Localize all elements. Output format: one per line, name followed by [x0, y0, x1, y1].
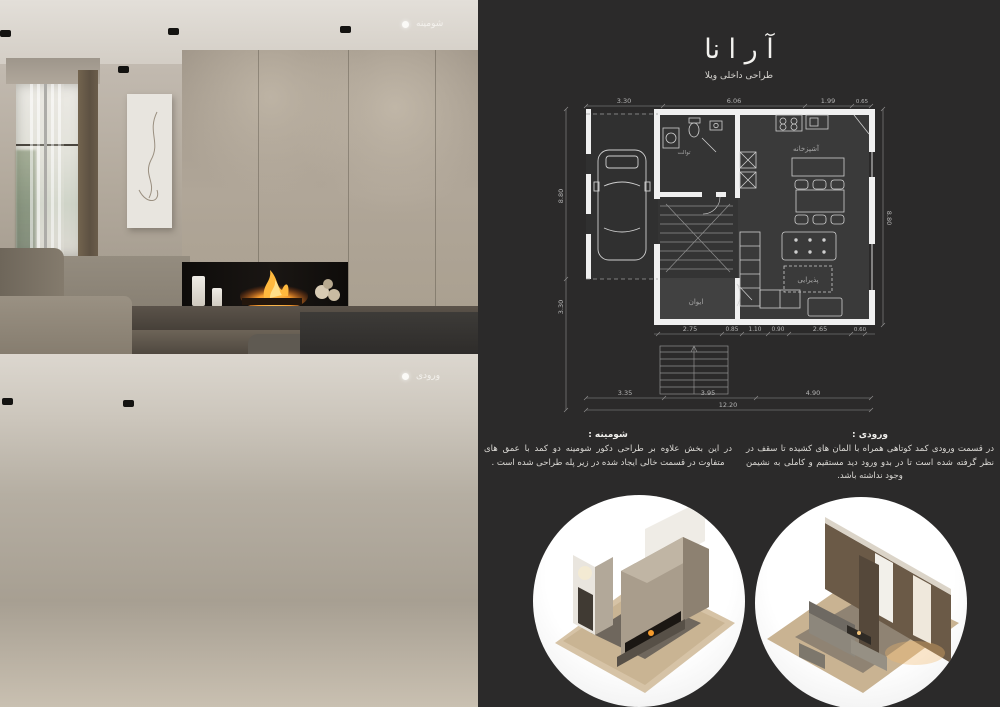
- notes-section: ورودی : در قسمت ورودی کمد کوتاهی همراه ب…: [484, 430, 994, 484]
- photo-label-text: ورودی: [416, 371, 440, 381]
- room-label-bath: توالت: [678, 150, 691, 156]
- foreground-table: [300, 312, 478, 354]
- fireplace-opening: [182, 262, 348, 307]
- floor-plan: 3.30 6.06 1.99 0.65 8.80 3.30 8.80 2.75 …: [536, 94, 956, 426]
- render-circle-fireplace: [533, 495, 745, 707]
- dim-bottom-1: 3.35: [618, 389, 632, 397]
- photo-label-entry: ورودی: [402, 371, 440, 381]
- room-label-living: پذیرایی: [797, 276, 818, 284]
- photo-label-text: شومینه: [416, 19, 443, 29]
- room-label-porch: ایوان: [689, 298, 704, 306]
- dim-right: 8.80: [885, 211, 893, 225]
- title-block: آ ر ا نا طراحی داخلی ویلا: [478, 34, 1000, 81]
- photo-fireplace-room: شومینه: [0, 0, 478, 354]
- spotlight-icon: [340, 26, 351, 33]
- dim-bottom-3: 4.90: [806, 389, 820, 397]
- photo-label-fireplace: شومینه: [402, 19, 443, 29]
- bullet-dot-icon: [402, 21, 409, 28]
- dim-left-upper: 8.80: [557, 189, 565, 203]
- note-fireplace: شومینه : در این بخش علاوه بر طراحی دکور …: [484, 430, 732, 484]
- dim-total: 12.20: [719, 401, 738, 409]
- spotlight-icon: [2, 398, 13, 405]
- note-fireplace-body: در این بخش علاوه بر طراحی دکور شومینه دو…: [484, 443, 732, 470]
- bullet-dot-icon: [402, 373, 409, 380]
- project-title: آ ر ا نا: [478, 34, 1000, 65]
- photo-column: شومینه ورودی: [0, 0, 478, 707]
- sheer-curtain: [30, 84, 64, 256]
- room-label-kitchen: آشپزخانه: [793, 144, 820, 153]
- plan-exterior-stairs: [660, 346, 728, 394]
- dim-mid-4: 0.90: [772, 327, 785, 333]
- spotlight-icon: [123, 400, 134, 407]
- wall-artwork: [127, 94, 172, 228]
- note-entry: ورودی : در قسمت ورودی کمد کوتاهی همراه ب…: [746, 430, 994, 484]
- dim-bottom-2: 3.95: [701, 389, 715, 397]
- dim-left-lower: 3.30: [557, 300, 565, 314]
- spotlight-icon: [168, 28, 179, 35]
- spotlight-icon: [0, 30, 11, 37]
- presentation-board: شومینه ورودی: [0, 0, 1000, 707]
- dim-mid-2: 0.85: [726, 327, 739, 333]
- dim-mid-3: 1.10: [749, 327, 762, 333]
- project-subtitle: طراحی داخلی ویلا: [478, 71, 1000, 81]
- render-circle-living: [755, 497, 967, 707]
- note-fireplace-heading: شومینه :: [484, 430, 732, 440]
- photo-entry-room: ورودی: [0, 354, 478, 707]
- dim-top-2: 6.06: [727, 97, 741, 105]
- candle: [212, 288, 222, 307]
- drape: [78, 70, 98, 256]
- note-entry-body: در قسمت ورودی کمد کوتاهی همراه با المان …: [746, 443, 994, 484]
- dim-mid-6: 0.60: [854, 327, 867, 333]
- note-entry-heading: ورودی :: [746, 430, 994, 440]
- spotlight-icon: [118, 66, 129, 73]
- dim-top-3: 1.99: [821, 97, 835, 105]
- dim-top-4: 0.65: [856, 99, 869, 105]
- dim-mid-5: 2.65: [813, 325, 827, 333]
- sofa-armrest: [0, 296, 132, 354]
- dim-top-1: 3.30: [617, 97, 631, 105]
- info-panel: آ ر ا نا طراحی داخلی ویلا: [478, 0, 1000, 707]
- candle: [192, 276, 205, 306]
- dim-mid-1: 2.75: [683, 325, 697, 333]
